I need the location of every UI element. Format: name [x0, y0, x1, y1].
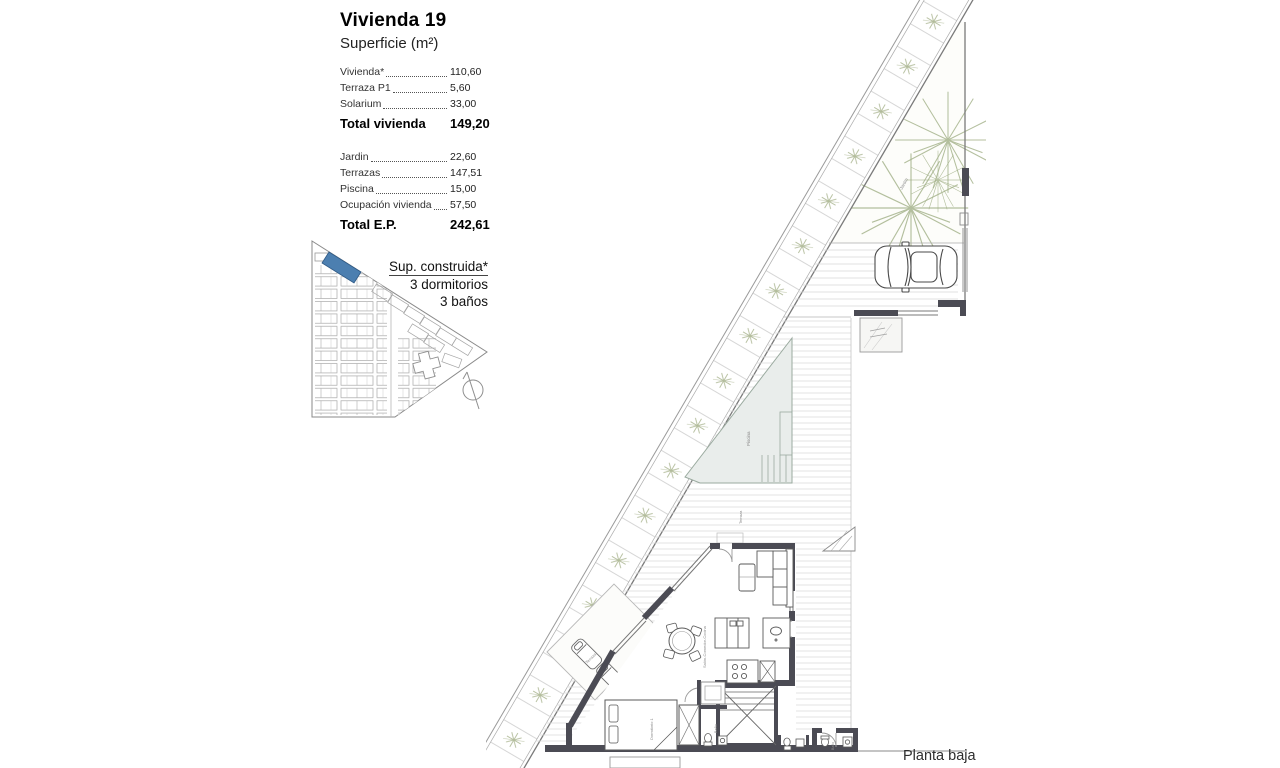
- bedroom-label: Dormitorio 1: [649, 717, 654, 740]
- row-label: Solarium: [340, 96, 381, 112]
- floorplan-sheet: { "panel": { "title": "Vivienda 19", "su…: [0, 0, 1280, 768]
- table-row: Vivienda*110,60: [340, 64, 494, 80]
- site-key-map: [303, 238, 498, 420]
- total-label: Total vivienda: [340, 115, 450, 133]
- pedestrian-gate: [962, 168, 969, 196]
- row-leader: [382, 177, 447, 178]
- pool-label: Piscina: [746, 431, 751, 446]
- table-row: Terrazas147,51: [340, 165, 494, 181]
- row-label: Ocupación vivienda: [340, 197, 432, 213]
- plan-caption: Planta baja: [903, 748, 976, 764]
- page-title: Vivienda 19: [340, 10, 494, 32]
- porch-step: [610, 757, 680, 768]
- table-row: Ocupación vivienda57,50: [340, 197, 494, 213]
- row-leader: [371, 161, 447, 162]
- row-label: Terraza P1: [340, 80, 391, 96]
- row-leader: [386, 76, 447, 77]
- terrace-label: Terraza: [738, 510, 743, 524]
- surface-table-parcela: Jardin22,60 Terrazas147,51 Piscina15,00 …: [340, 149, 494, 234]
- pool-plant-box: [860, 318, 902, 352]
- table-row: Piscina15,00: [340, 181, 494, 197]
- total-label: Total E.P.: [340, 216, 450, 234]
- row-leader: [383, 108, 447, 109]
- row-label: Terrazas: [340, 165, 380, 181]
- row-label: Vivienda*: [340, 64, 384, 80]
- living-label: Salón-Comedor-Cocina: [702, 625, 707, 668]
- row-label: Jardin: [340, 149, 369, 165]
- car-icon: [875, 242, 957, 292]
- table-row: Jardin22,60: [340, 149, 494, 165]
- panel-subtitle: Superficie (m²): [340, 35, 494, 52]
- bathroom2-label: Baño: [831, 742, 835, 750]
- row-leader: [376, 193, 447, 194]
- table-total-row: Total vivienda149,20: [340, 115, 494, 133]
- table-row: Solarium33,00: [340, 96, 494, 112]
- floor-plan: Jardín: [486, 0, 986, 768]
- north-compass-icon: [463, 372, 483, 409]
- row-leader: [434, 209, 447, 210]
- bedroom: Dormitorio 1: [605, 700, 699, 750]
- table-row: Terraza P15,60: [340, 80, 494, 96]
- bathroom-label: Baño: [714, 724, 718, 733]
- surface-table-vivienda: Vivienda*110,60 Terraza P15,60 Solarium3…: [340, 64, 494, 133]
- row-leader: [393, 92, 447, 93]
- row-label: Piscina: [340, 181, 374, 197]
- table-total-row: Total E.P.242,61: [340, 216, 494, 234]
